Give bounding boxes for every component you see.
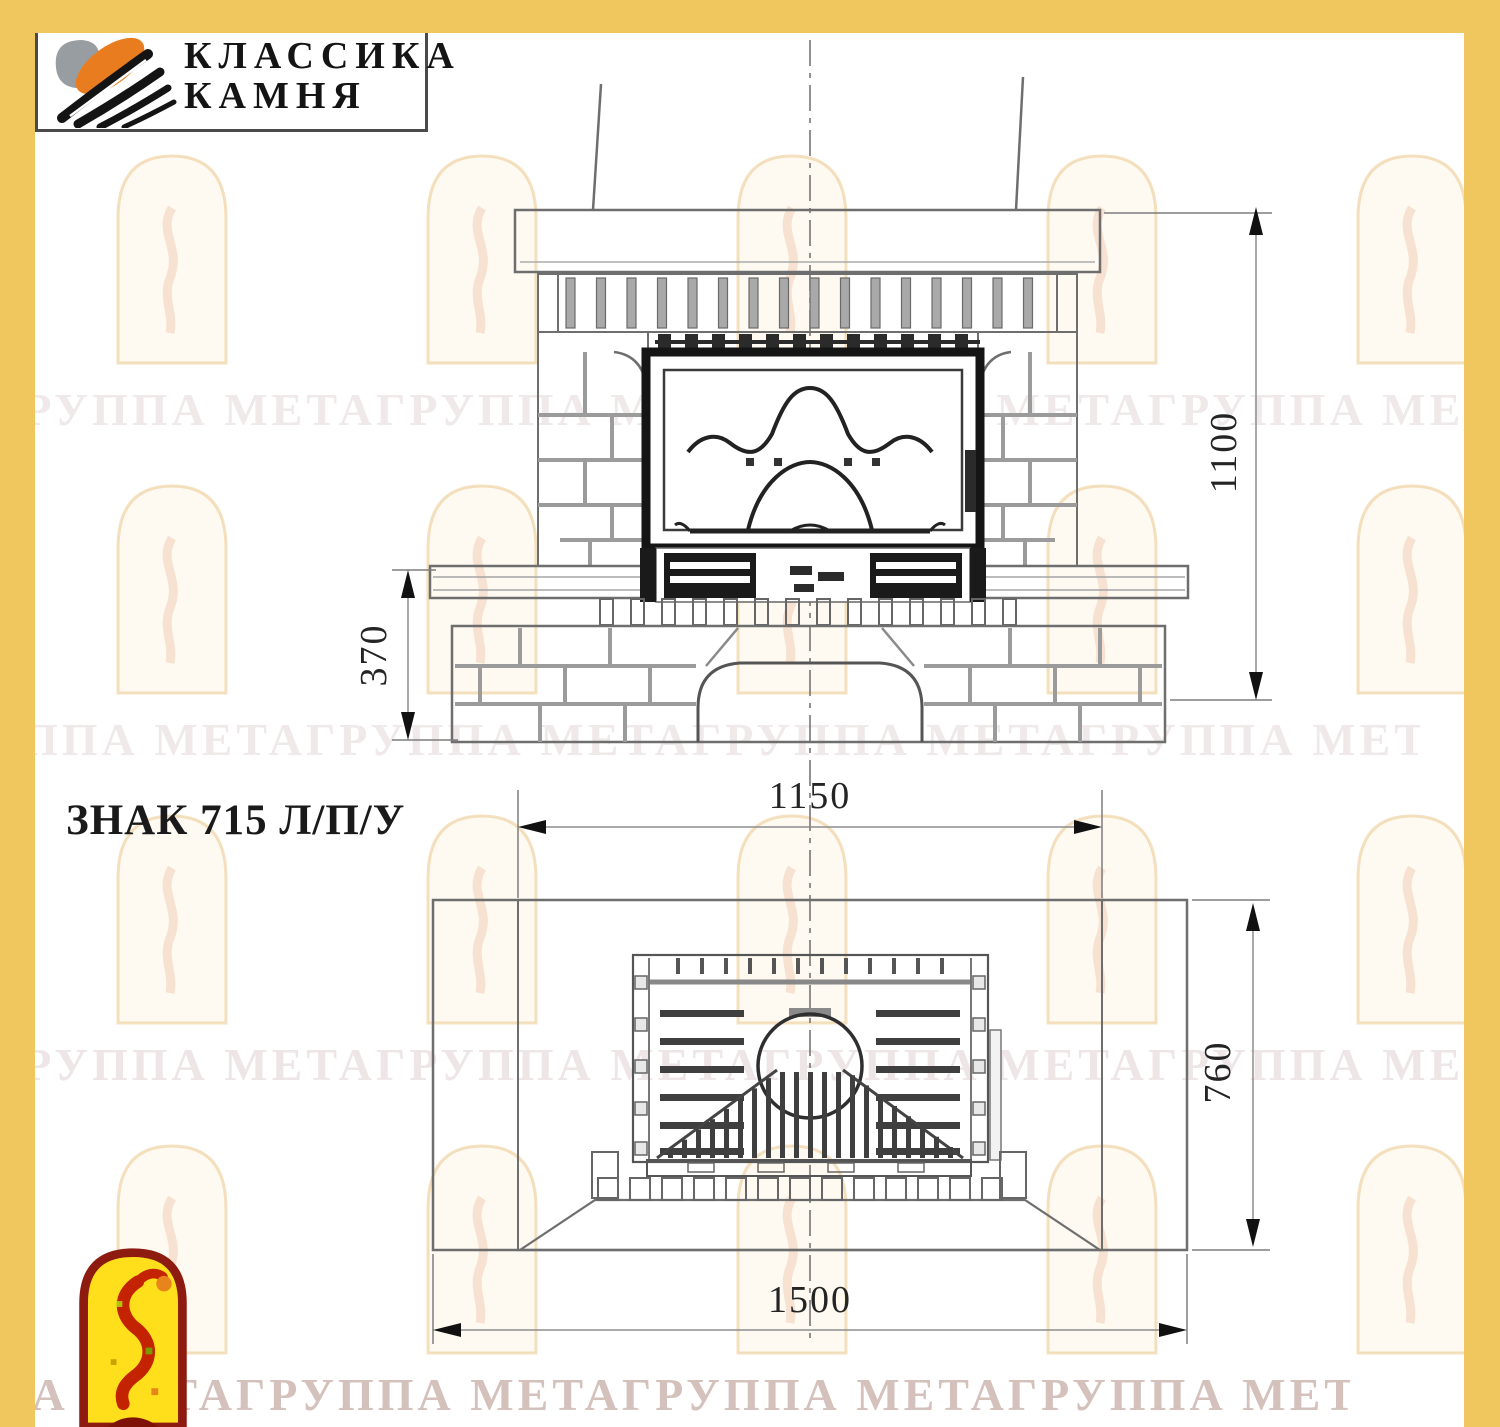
plan-grate-bars	[668, 1072, 953, 1172]
stone-classic-logo-icon	[48, 28, 178, 128]
firebox-glass	[664, 370, 962, 530]
door-handle	[965, 450, 976, 512]
base-brick-joints	[455, 628, 1162, 742]
dimension-760: 760	[1192, 900, 1270, 1250]
frame-border-left	[0, 0, 35, 1427]
dim-label-1150: 1150	[769, 775, 852, 817]
hearth-dentil-row	[600, 599, 1016, 625]
dimension-1150: 1150	[518, 775, 1102, 898]
plan-dentil-row	[598, 1178, 1002, 1200]
company-name-line1: КЛАССИКА	[184, 36, 461, 76]
firebox-top-dentils	[655, 334, 980, 349]
frame-border-right	[1464, 0, 1500, 1427]
company-logo-box: КЛАССИКА КАМНЯ	[35, 20, 428, 132]
stone-column-right	[978, 332, 1077, 566]
vent-grille-right	[870, 553, 962, 598]
front-elevation-view	[430, 77, 1188, 742]
chimney-line-right	[1016, 77, 1023, 210]
dim-label-760: 760	[1197, 1041, 1239, 1104]
model-title: ЗНАК 715 Л/П/У	[66, 796, 405, 845]
meta-arch-logo-icon	[76, 1243, 190, 1427]
fireplace-technical-drawing: 370 1100 1150	[0, 0, 1500, 1427]
company-name-line2: КАМНЯ	[184, 76, 461, 116]
stone-base	[452, 626, 1165, 742]
dimension-370: 370	[353, 570, 458, 740]
dim-label-1100: 1100	[1203, 411, 1245, 494]
stone-column-left	[538, 332, 648, 566]
dim-label-370: 370	[353, 624, 395, 687]
vent-grille-left	[664, 553, 756, 598]
dim-label-1500: 1500	[768, 1279, 852, 1321]
letterhead-page: ГРУППА МЕТАГРУППА МЕТАГРУППА МЕТАГРУППА …	[0, 0, 1500, 1427]
chimney-line-left	[593, 84, 601, 210]
baluster-bars	[566, 278, 1033, 328]
company-name: КЛАССИКА КАМНЯ	[184, 36, 461, 116]
frame-border-top	[0, 0, 1500, 33]
plan-door-hinge-bar	[990, 1030, 1001, 1160]
